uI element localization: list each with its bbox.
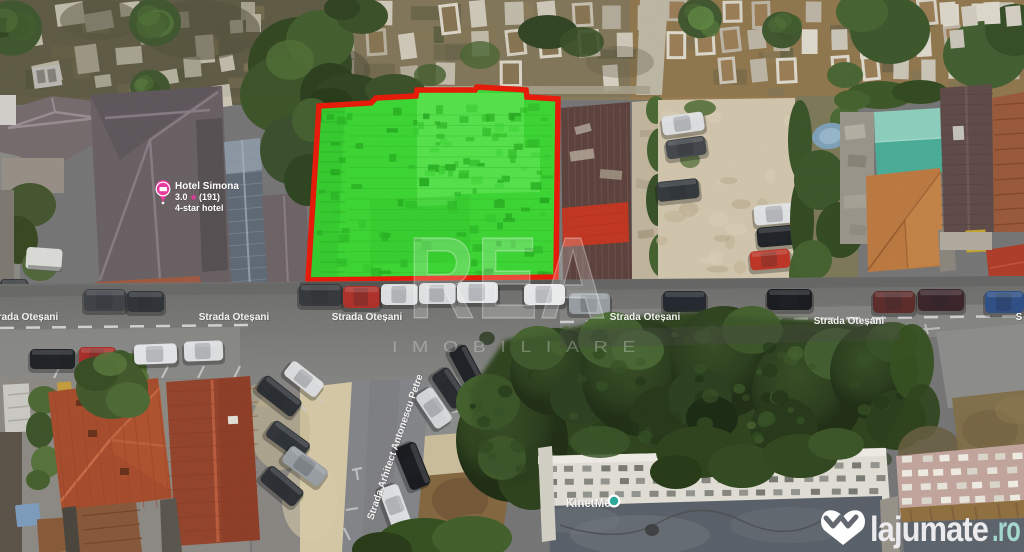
svg-text:IMOBILIARE: IMOBILIARE: [392, 339, 650, 356]
svg-text:★: ★: [190, 193, 198, 202]
svg-text:Strada Oteșani: Strada Oteșani: [814, 316, 885, 327]
svg-text:Strada Oteșani: Strada Oteșani: [610, 312, 681, 323]
svg-text:lajumate: lajumate: [870, 510, 988, 549]
svg-text:Strada Oteșani: Strada Oteșani: [332, 312, 403, 323]
svg-text:Hotel Simona: Hotel Simona: [175, 181, 239, 192]
svg-text:Strada Oteșani: Strada Oteșani: [199, 312, 270, 323]
svg-text:S: S: [1016, 312, 1023, 323]
svg-text:3.0: 3.0: [175, 192, 188, 202]
svg-text:.ro: .ro: [992, 510, 1020, 549]
svg-text:rada Oteșani: rada Oteșani: [0, 312, 59, 323]
svg-text:4-star hotel: 4-star hotel: [175, 203, 224, 213]
svg-text:REA: REA: [408, 213, 608, 343]
svg-text:(191): (191): [199, 192, 220, 202]
